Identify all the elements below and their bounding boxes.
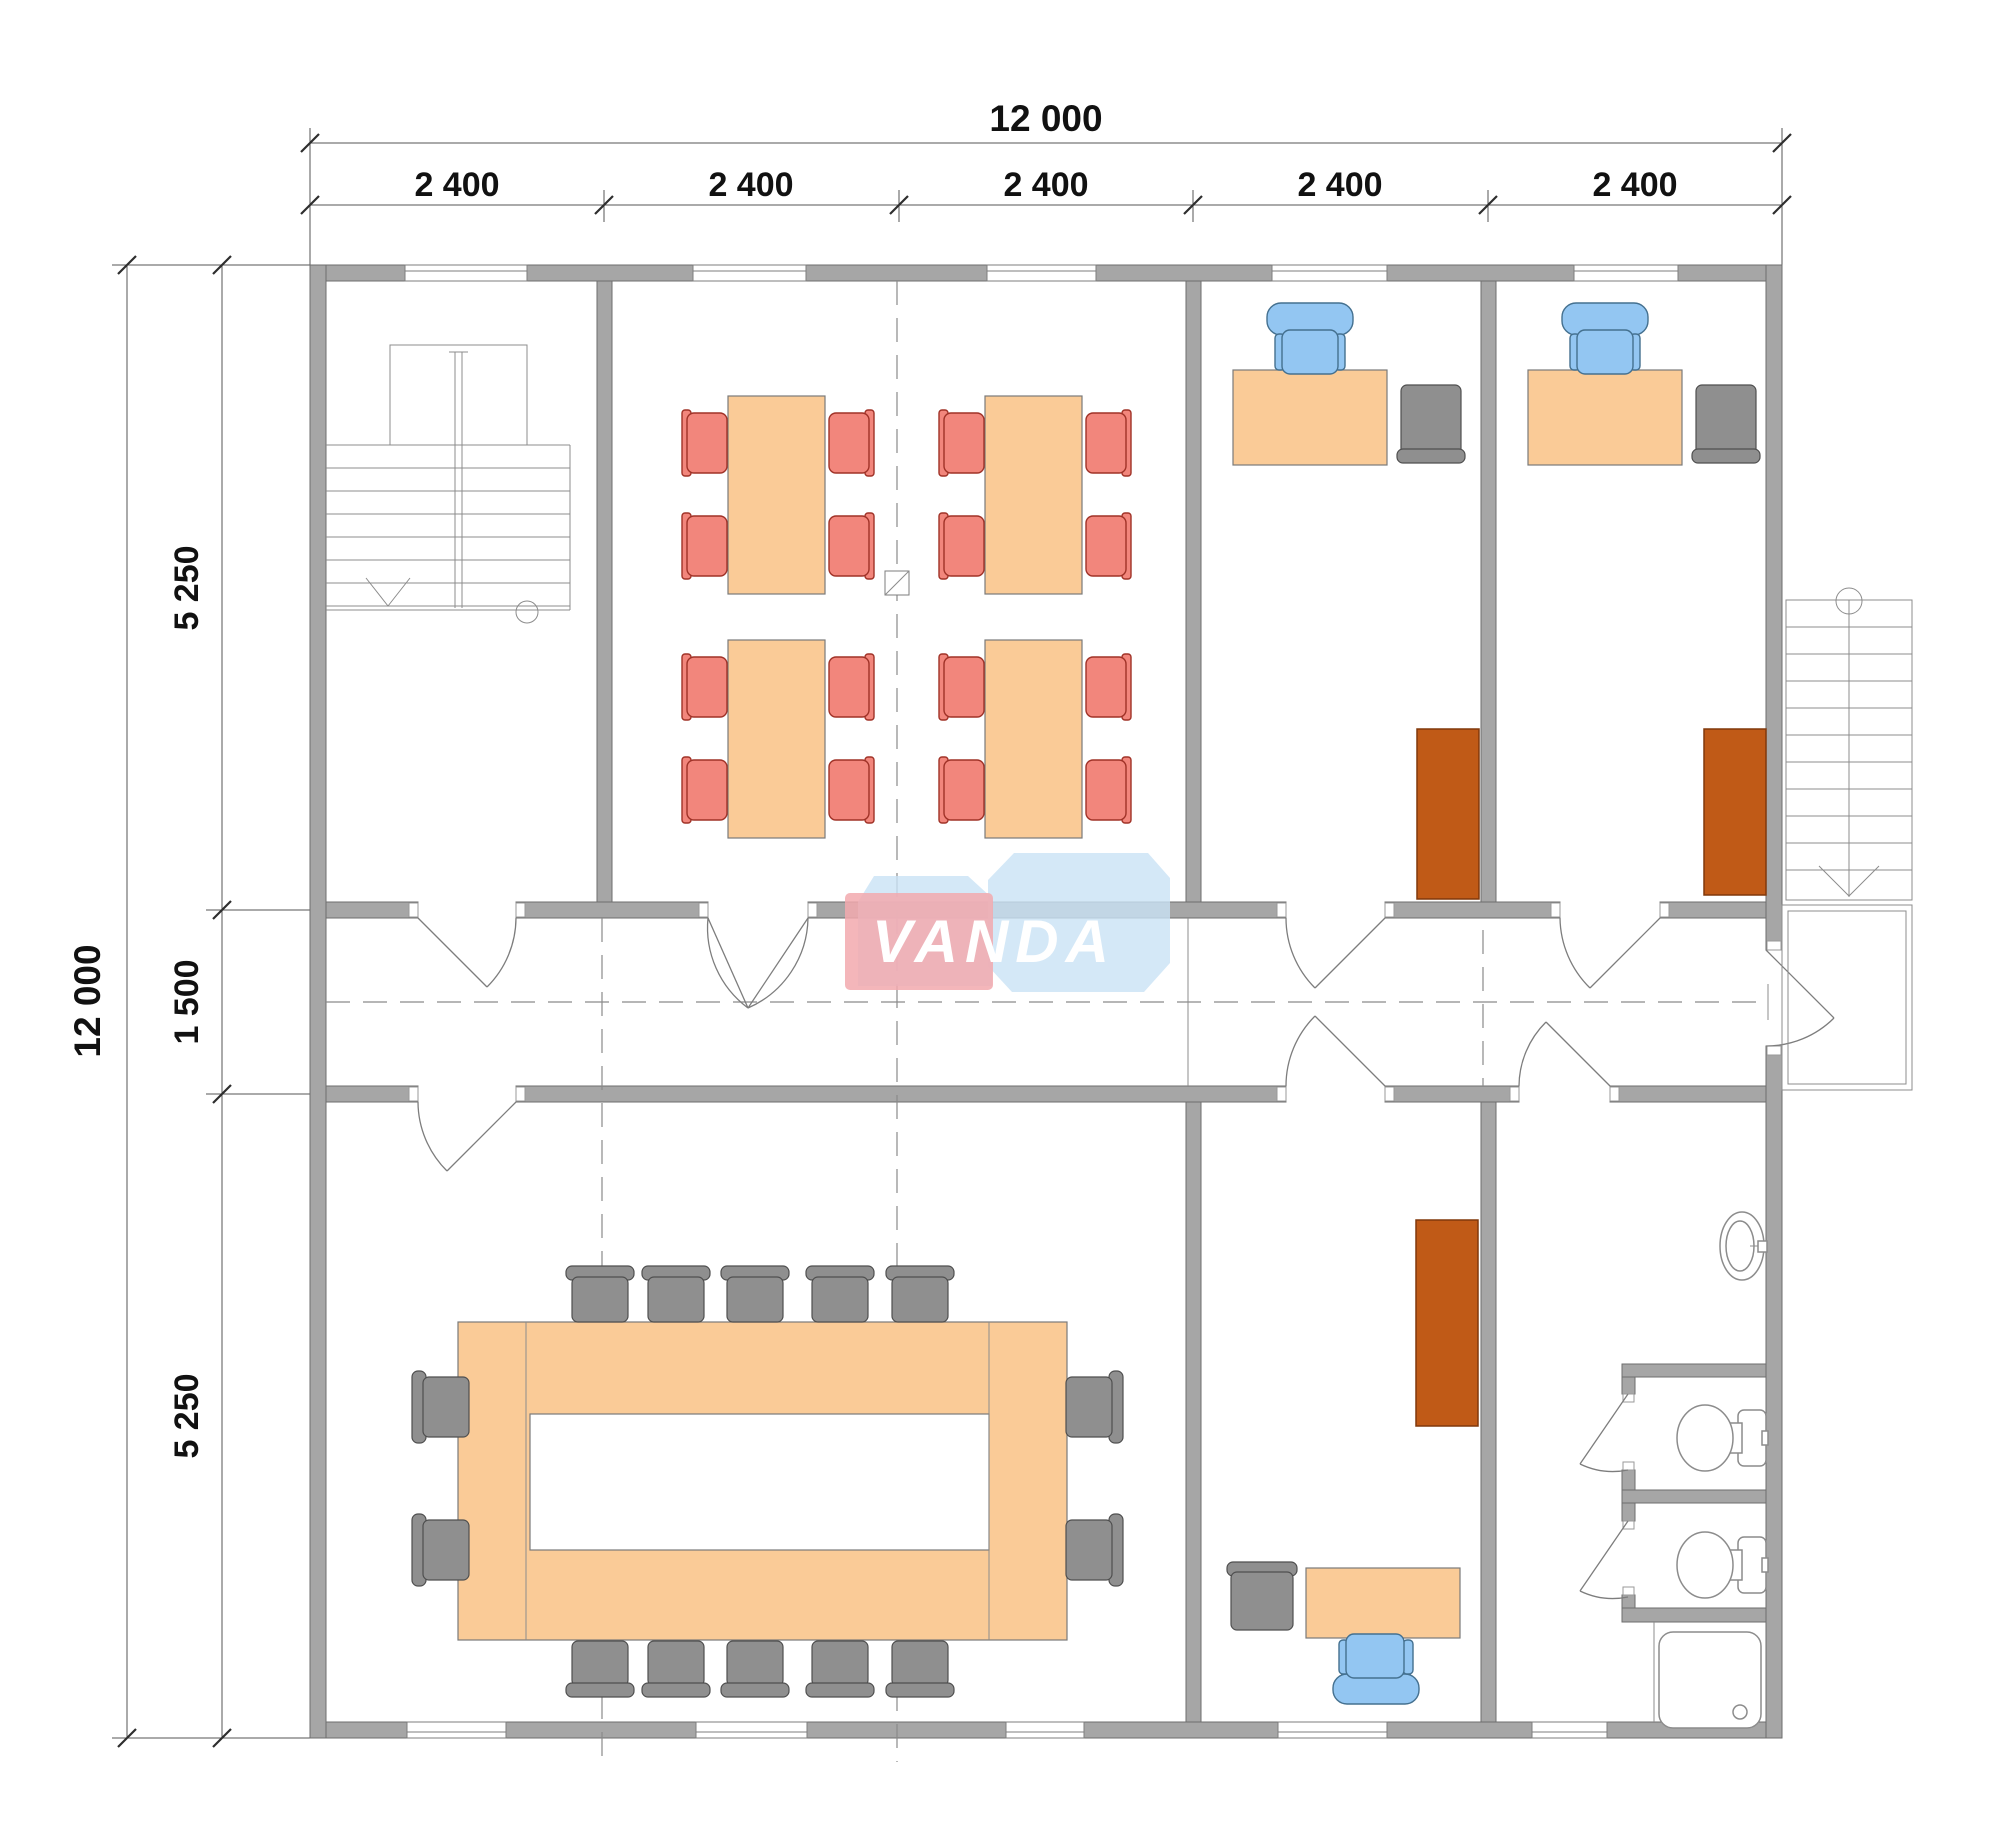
sink (1720, 1212, 1767, 1280)
door-stall-1 (1580, 1394, 1628, 1472)
dining-room-furniture (682, 396, 1131, 838)
office-desk (1306, 1568, 1460, 1638)
shower (1654, 1622, 1761, 1728)
wall-exterior-right (1766, 1046, 1782, 1738)
gray-side-chair (1692, 385, 1760, 463)
wall-corridor-top (1385, 902, 1560, 918)
dim-label-left-seg-2: 1 500 (168, 959, 206, 1044)
entry-landing-outline (1782, 905, 1912, 1090)
office-desk (1528, 370, 1682, 465)
gray-side-chair (1227, 1562, 1297, 1630)
door-office-a (1286, 918, 1385, 988)
wall-stall (1622, 1364, 1766, 1377)
door-stall-2 (1580, 1521, 1628, 1599)
wall-corridor-bottom (326, 1086, 418, 1102)
dim-label-bay-3: 2 400 (1003, 166, 1088, 204)
wall-stall (1622, 1470, 1635, 1490)
dining-table-2 (985, 396, 1082, 594)
wall-corridor-top (326, 902, 418, 918)
dim-label-bay-1: 2 400 (414, 166, 499, 204)
exterior-staircase (1782, 588, 1912, 1090)
dim-extension-left (112, 265, 310, 1738)
stair-edge (326, 445, 570, 610)
dim-label-bay-4: 2 400 (1297, 166, 1382, 204)
door-bathroom (1519, 1022, 1610, 1086)
watermark-text: VANDA (872, 908, 1116, 975)
wall-stall (1622, 1503, 1635, 1521)
conference-table-opening (530, 1414, 989, 1550)
office-a-furniture (1233, 303, 1479, 899)
wall-stall (1622, 1377, 1635, 1394)
wall-office-office (1481, 281, 1496, 918)
watermark-logo: VANDA (845, 853, 1170, 992)
wall-stall (1622, 1490, 1766, 1503)
stair-treads (326, 445, 570, 606)
blue-office-chair (1562, 303, 1648, 374)
entry-landing-inner (1788, 911, 1906, 1084)
floor-plan-page: 12 000 2 400 2 400 2 400 2 400 2 400 12 … (0, 0, 2000, 1848)
wall-office-bathroom (1481, 1086, 1496, 1722)
dining-table-1 (728, 396, 825, 594)
dining-table-4 (985, 640, 1082, 838)
floor-plan-canvas: 12 000 2 400 2 400 2 400 2 400 2 400 12 … (0, 0, 2000, 1848)
cabinet (1417, 729, 1479, 899)
cabinet (1416, 1220, 1478, 1426)
door-exterior-right (1766, 950, 1834, 1046)
office-b-furniture (1528, 303, 1766, 895)
cabinet (1704, 729, 1766, 895)
stair-landing-outline (390, 345, 527, 445)
blue-office-chair (1267, 303, 1353, 374)
dim-label-bay-2: 2 400 (708, 166, 793, 204)
stair-down-arrow-icon (366, 578, 410, 606)
door-office-c (1286, 1016, 1385, 1086)
wall-stall (1622, 1608, 1766, 1622)
door-conference (418, 1102, 516, 1171)
bathroom-fixtures (1654, 1212, 1768, 1728)
wall-corridor-top (516, 902, 708, 918)
toilet (1677, 1532, 1768, 1598)
dim-label-left-seg-1: 5 250 (168, 545, 206, 630)
wall-stall (1622, 1595, 1635, 1608)
wall-conference-office (1186, 1086, 1201, 1722)
office-desk (1233, 370, 1387, 465)
gray-side-chair (1397, 385, 1465, 463)
dim-label-left-seg-3: 5 250 (168, 1373, 206, 1458)
door-office-b (1560, 918, 1660, 988)
wall-corridor-bottom (516, 1086, 1286, 1102)
interior-staircase (326, 345, 570, 623)
stair-handrail (449, 352, 468, 608)
dim-label-bay-5: 2 400 (1592, 166, 1677, 204)
stair-start-circle-icon (516, 601, 538, 623)
conference-room-furniture (412, 1266, 1123, 1697)
dining-table-3 (728, 640, 825, 838)
wall-exterior-left (310, 265, 326, 1738)
wall-stair-dining (597, 281, 612, 902)
dim-label-top-total: 12 000 (989, 98, 1102, 139)
wall-exterior-right (1766, 265, 1782, 950)
blue-office-chair (1333, 1634, 1419, 1704)
wall-corridor-top (1660, 902, 1766, 918)
door-dining-double (708, 918, 808, 1008)
door-stair-hall (418, 918, 516, 987)
column-symbol (885, 571, 909, 595)
wall-corridor-bottom (1610, 1086, 1766, 1102)
toilet (1677, 1405, 1768, 1471)
dim-label-left-total: 12 000 (67, 944, 108, 1057)
wall-corridor-bottom (1385, 1086, 1519, 1102)
wall-dining-office (1186, 281, 1201, 918)
office-c-furniture (1227, 1220, 1478, 1704)
